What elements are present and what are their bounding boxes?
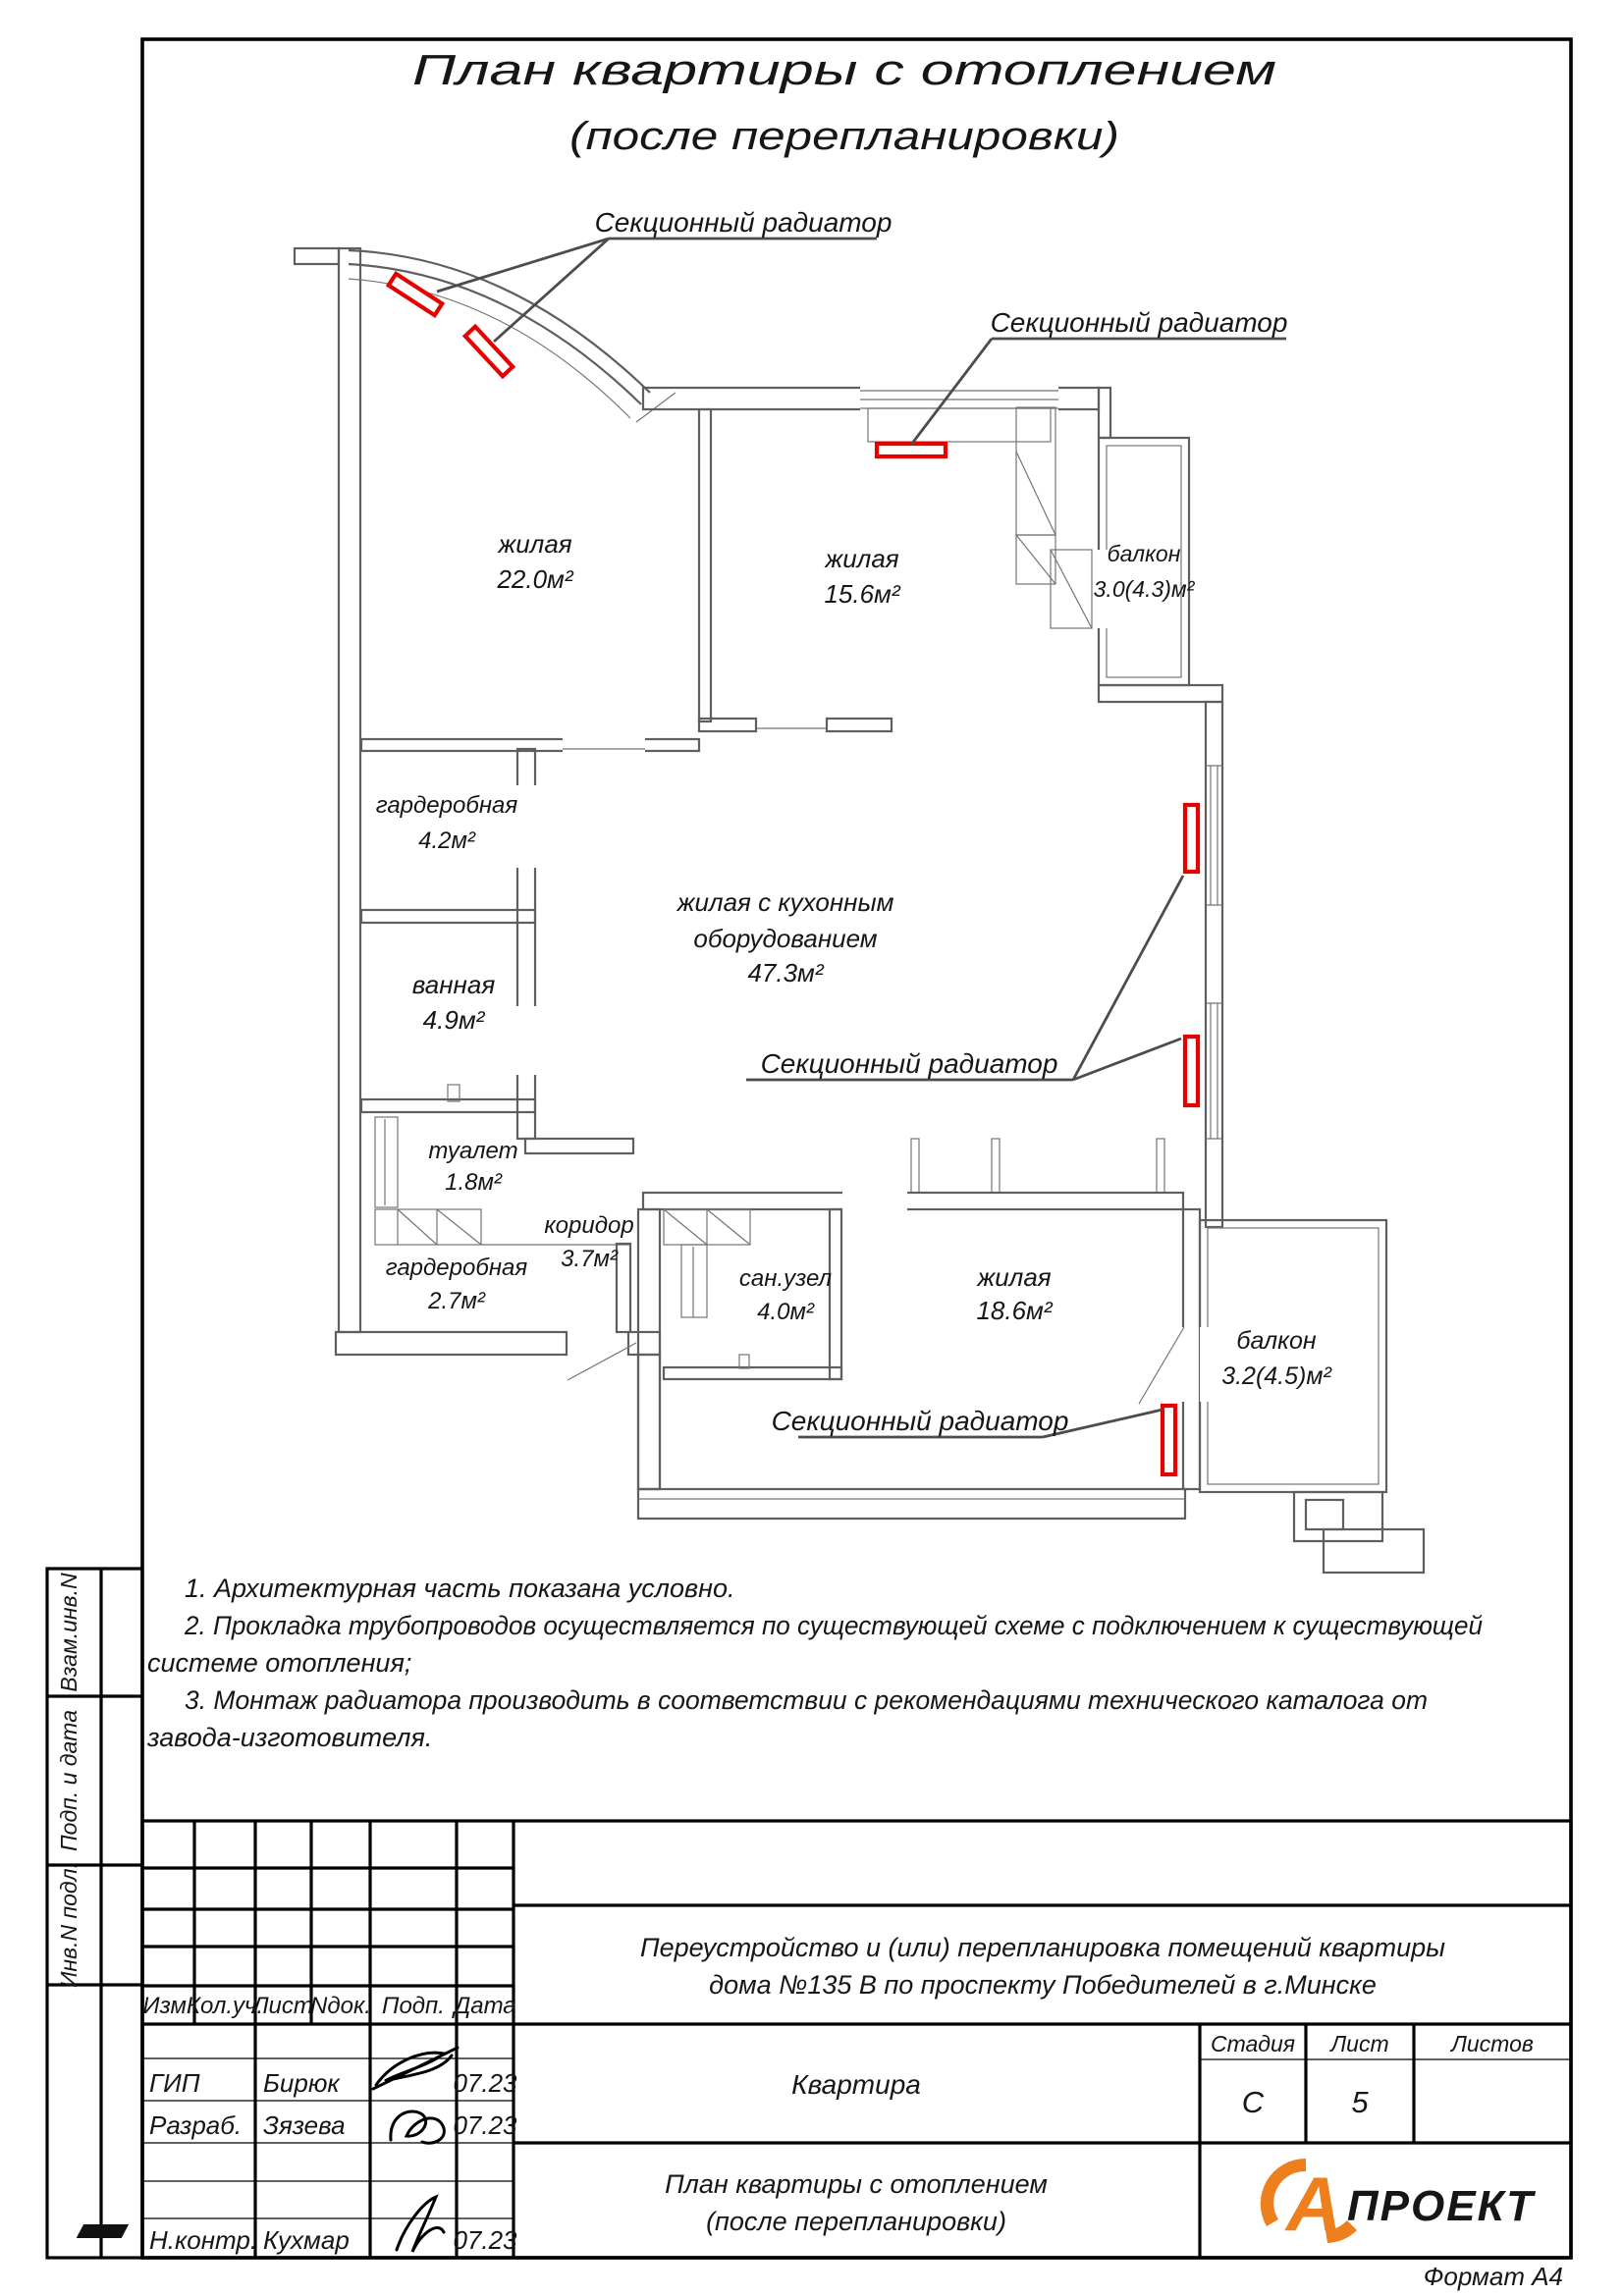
room-zhilaya-186-area: 18.6м²: [976, 1296, 1053, 1325]
title-block-signature-rows: ГИП Бирюк 07.23 Разраб. Зязева 07.23 Н.к…: [149, 2048, 517, 2255]
row-razrab-role: Разраб.: [149, 2110, 242, 2140]
note-line-3: системе отопления;: [147, 1648, 411, 1678]
object-name: Квартира: [791, 2069, 921, 2100]
col-ndok: Nдок.: [310, 1993, 371, 2019]
project-line-2: дома №135 В по проспекту Победителей в г…: [709, 1970, 1377, 2000]
side-stamp-column: Взам.инв.N Подп. и дата Инв.N подл.: [47, 1569, 142, 2258]
entry-door-swing: [568, 1343, 636, 1380]
floor-plan: Секционный радиатор Секционный радиатор …: [295, 207, 1424, 1573]
row-nkontr-name: Кухмар: [263, 2225, 350, 2255]
room-zhilaya-473-name: жилая с кухонным: [676, 887, 894, 917]
room-tualet-area: 1.8м²: [445, 1169, 503, 1196]
signature-gip: [373, 2048, 458, 2089]
logo-letter-a: А: [1284, 2161, 1341, 2247]
room-zhilaya-22-area: 22.0м²: [496, 564, 573, 594]
adjacent-structure: [1294, 1492, 1424, 1573]
room-sanuzel-area: 4.0м²: [757, 1299, 815, 1325]
room-zhilaya-22-name: жилая: [497, 529, 571, 559]
doc-title-line-2: (после перепланировки): [706, 2207, 1006, 2236]
signature-nkontr: [397, 2197, 444, 2252]
room-tualet-name: туалет: [428, 1138, 517, 1164]
notes: 1. Архитектурная часть показана условно.…: [146, 1574, 1483, 1752]
sheets-label: Листов: [1449, 2031, 1534, 2056]
room-zhilaya-156-area: 15.6м²: [824, 579, 900, 609]
row-gip-role: ГИП: [149, 2068, 200, 2098]
drawing-title-line1: План квартиры с отоплением: [412, 46, 1276, 94]
col-list: Лист: [250, 1993, 313, 2019]
room-sanuzel-name: сан.узел: [739, 1265, 833, 1292]
radiator-bay-2: [465, 327, 513, 377]
radiator-callout-label-1: Секционный радиатор: [595, 207, 893, 238]
logo-text: ПРОЕКТ: [1347, 2182, 1536, 2230]
sheet-value: 5: [1351, 2085, 1369, 2119]
radiator-right-2: [1185, 1037, 1198, 1105]
radiator-right-1: [1185, 805, 1198, 872]
room-zhilaya-473-area: 47.3м²: [747, 958, 824, 988]
drawing-canvas: План квартиры с отоплением (после перепл…: [0, 0, 1623, 2296]
radiators: [389, 274, 1198, 1474]
stage-label: Стадия: [1211, 2031, 1295, 2056]
vent-shaft-left: [375, 1209, 481, 1245]
window-right-1: [1206, 766, 1222, 905]
project-line-1: Переустройство и (или) перепланировка по…: [640, 1933, 1445, 1962]
sheet-label: Лист: [1328, 2031, 1388, 2056]
radiator-callout-label-3: Секционный радиатор: [761, 1048, 1058, 1079]
sheet-frame: [142, 39, 1571, 2258]
drawing-title-line2: (после перепланировки): [569, 115, 1119, 158]
room-vannaya-area: 4.9м²: [423, 1005, 486, 1035]
title-block: Изм. Кол.уч. Лист Nдок. Подп. Дата ГИП Б…: [77, 1821, 1571, 2258]
title-block-col-headers: Изм. Кол.уч. Лист Nдок. Подп. Дата: [142, 1993, 515, 2019]
room-garderob-42-area: 4.2м²: [418, 828, 476, 854]
radiator-callout-label-2: Секционный радиатор: [991, 307, 1288, 338]
note-line-4: 3. Монтаж радиатора производить в соотве…: [185, 1685, 1428, 1715]
radiator-callout-label-4: Секционный радиатор: [772, 1406, 1069, 1436]
room-koridor-name: коридор: [544, 1212, 633, 1239]
vent-shaft-sanuzel: [664, 1209, 750, 1245]
radiator-top-window: [877, 444, 946, 456]
logo-slash: [77, 2224, 129, 2238]
room-zhilaya-186-name: жилая: [976, 1262, 1051, 1292]
window-right-2: [1206, 1003, 1222, 1139]
row-nkontr-date: 07.23: [453, 2225, 517, 2255]
col-data: Дата: [451, 1993, 515, 2019]
col-podp: Подп.: [382, 1993, 445, 2019]
vent-shaft-kitchen: [1016, 407, 1092, 628]
row-gip-date: 07.23: [453, 2068, 517, 2098]
room-vannaya-name: ванная: [412, 970, 496, 999]
room-balkon-2-area: 3.2(4.5)м²: [1221, 1362, 1332, 1390]
room-koridor-area: 3.7м²: [561, 1246, 619, 1272]
doc-title-line-1: План квартиры с отоплением: [665, 2169, 1048, 2199]
room-garderob-27-name: гардеробная: [386, 1255, 528, 1281]
drawing-sheet: План квартиры с отоплением (после перепл…: [0, 0, 1623, 2296]
row-gip-name: Бирюк: [263, 2068, 341, 2098]
side-label-podp: Подп. и дата: [56, 1710, 81, 1851]
side-label-inv: Инв.N подл.: [56, 1862, 81, 1988]
note-line-1: 1. Архитектурная часть показана условно.: [185, 1574, 735, 1603]
room-balkon-1-area: 3.0(4.3)м²: [1094, 576, 1196, 602]
room-zhilaya-156-name: жилая: [824, 544, 898, 573]
room-garderob-42-name: гардеробная: [376, 792, 518, 819]
stage-value: С: [1242, 2085, 1265, 2119]
note-line-2: 2. Прокладка трубопроводов осуществляетс…: [184, 1611, 1483, 1640]
row-razrab-name: Зязева: [263, 2110, 346, 2140]
room-zhilaya-473-name2: оборудованием: [693, 924, 877, 953]
room-balkon-2-name: балкон: [1236, 1327, 1316, 1355]
signature-razrab: [391, 2111, 445, 2143]
row-nkontr-role: Н.контр.: [149, 2225, 257, 2255]
balcony-door-swing: [1139, 1327, 1184, 1404]
radiator-bottom: [1163, 1406, 1175, 1474]
note-line-5: завода-изготовителя.: [146, 1723, 432, 1752]
balcony-2-outline: [1200, 1220, 1386, 1492]
side-label-vzam: Взам.инв.N: [56, 1573, 81, 1692]
row-razrab-date: 07.23: [453, 2110, 517, 2140]
room-garderob-27-area: 2.7м²: [427, 1288, 486, 1314]
room-balkon-1-name: балкон: [1108, 541, 1181, 566]
format-label: Формат А4: [1424, 2262, 1563, 2291]
window-top: [860, 384, 1058, 442]
